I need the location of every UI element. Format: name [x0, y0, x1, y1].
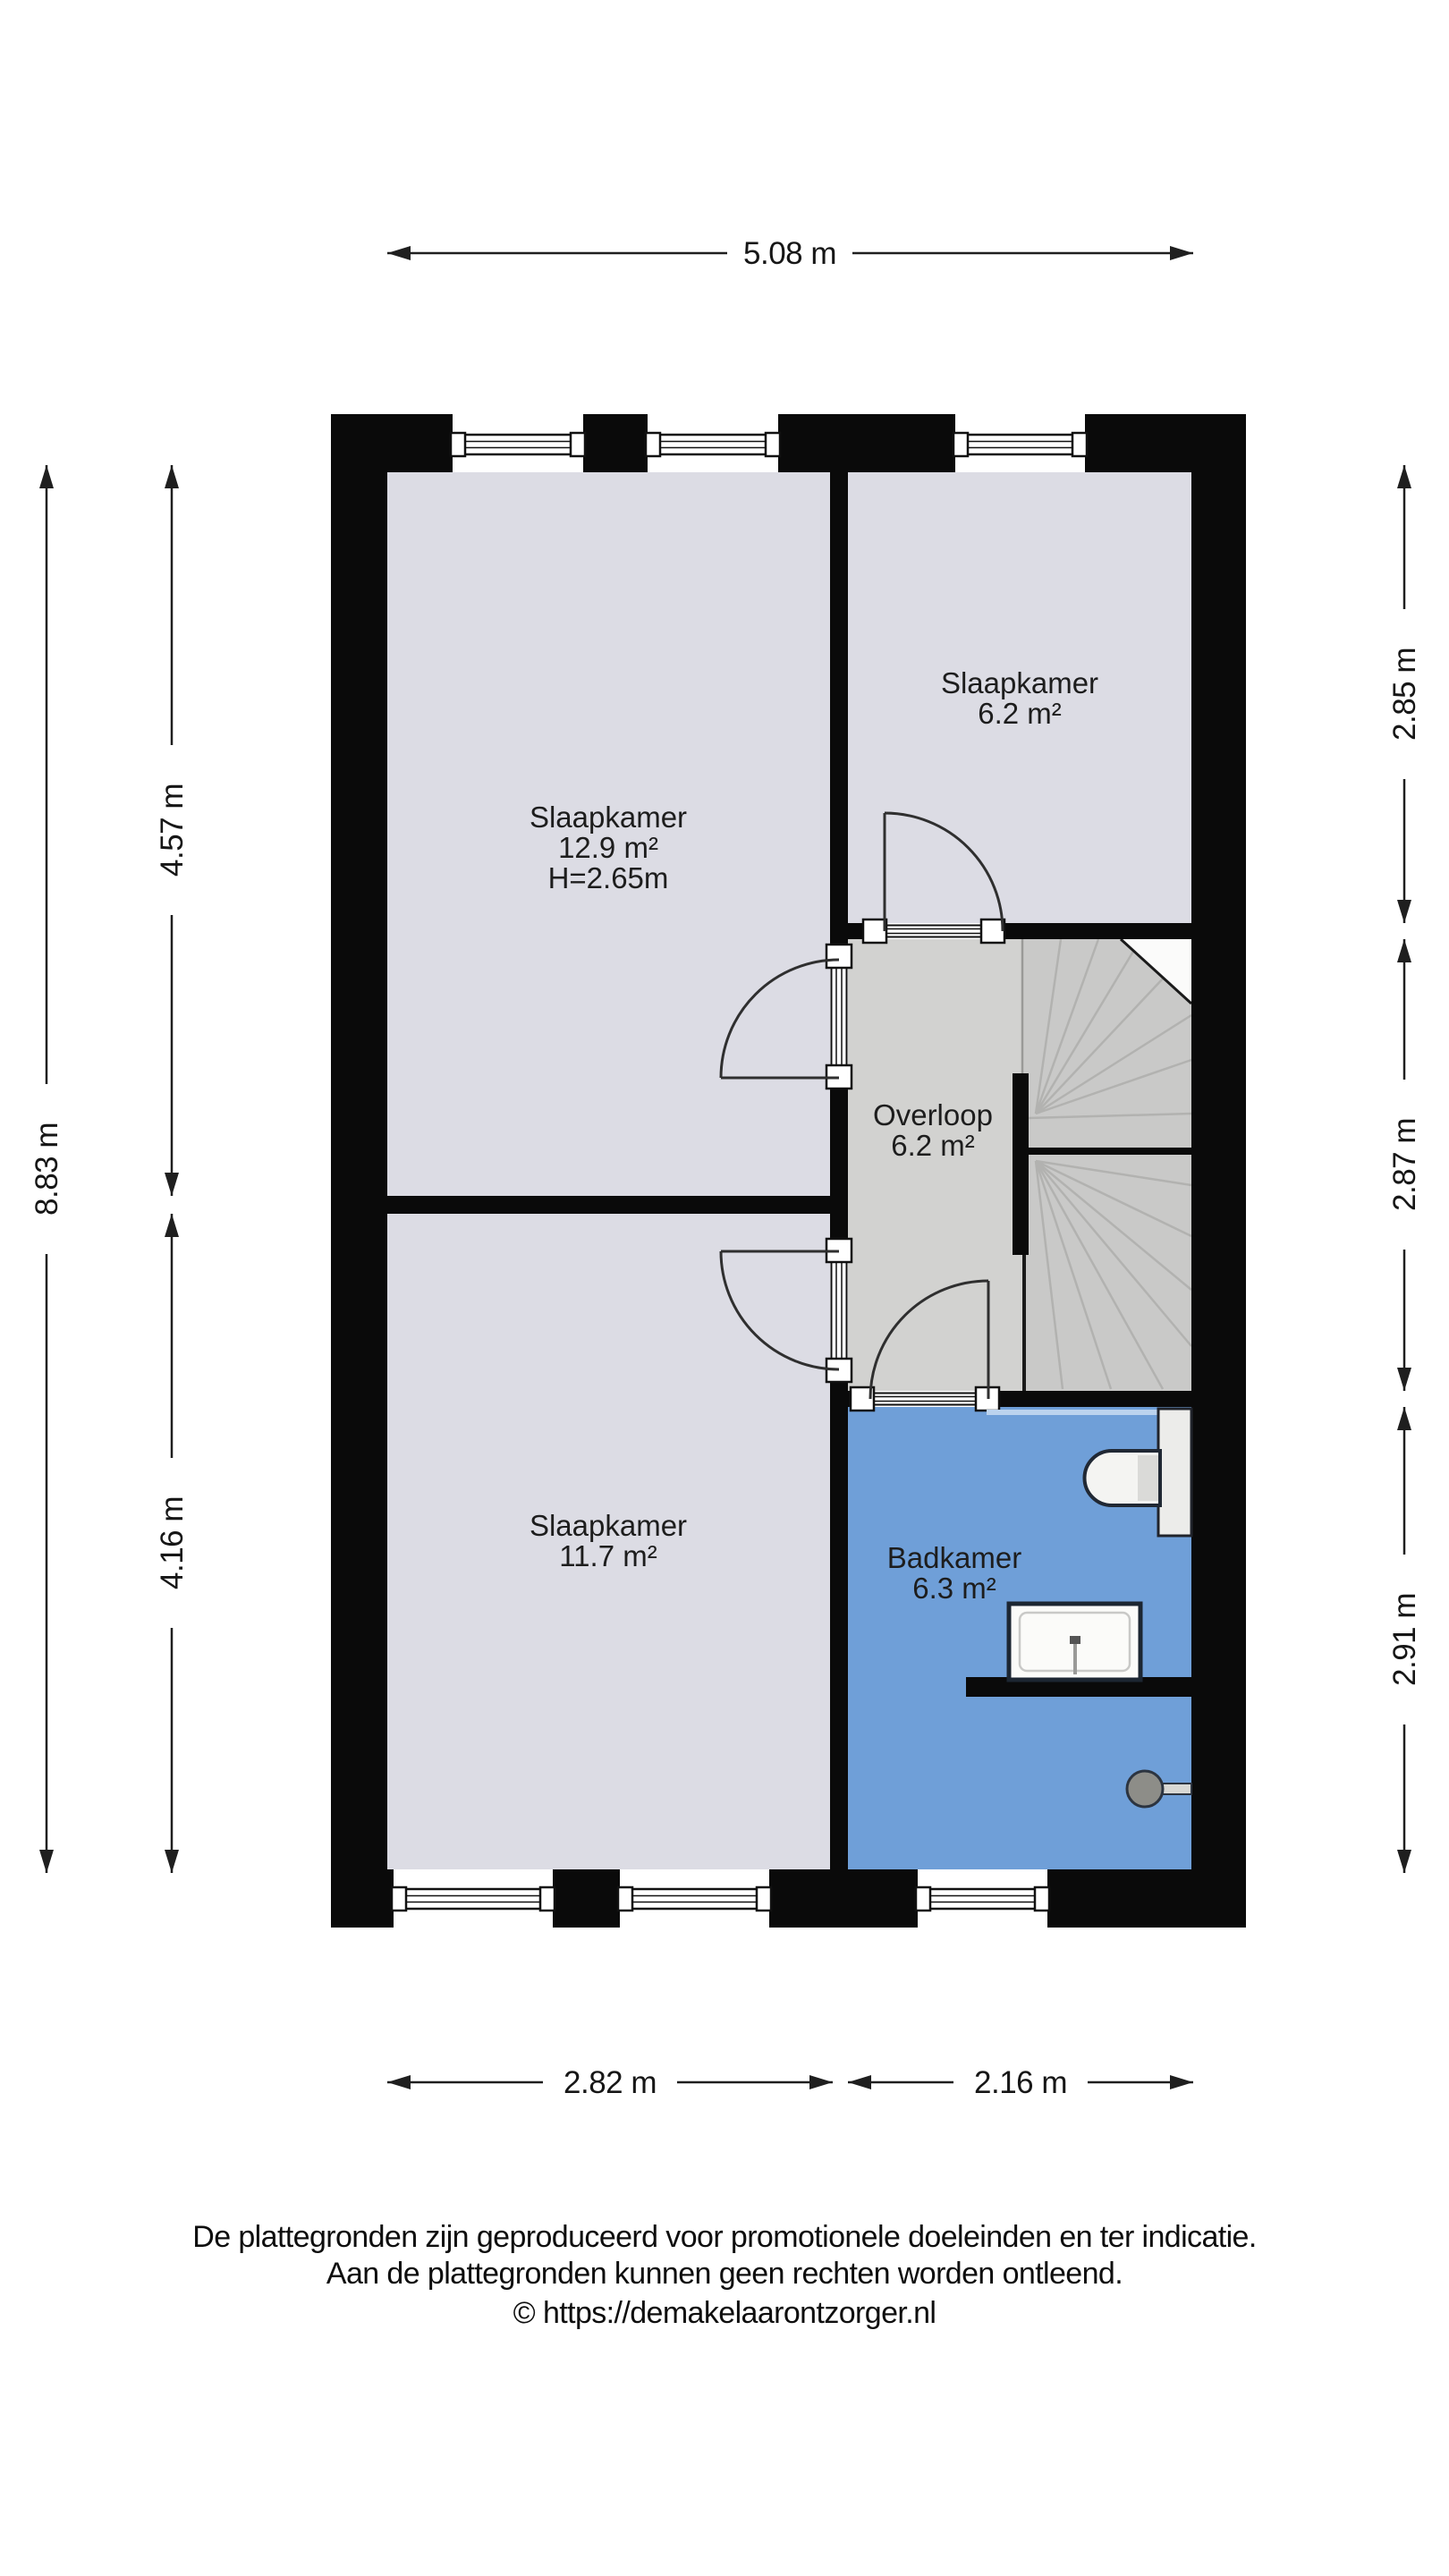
interior-wall-vertical — [830, 1382, 848, 1869]
footer-copyright: © https://demakelaarontzorger.nl — [513, 2296, 936, 2330]
floor-overloop — [848, 939, 1022, 1391]
outer-wall-top — [331, 414, 453, 472]
outer-wall-bottom — [331, 1869, 394, 1928]
interior-wall-vertical — [830, 472, 848, 946]
outer-wall-top — [1085, 414, 1246, 472]
window — [646, 414, 780, 472]
dim-bottom-right-width: 2.16 m — [974, 2065, 1067, 2100]
interior-wall-vertical — [830, 1089, 848, 1241]
room-name: Slaapkamer — [530, 801, 687, 834]
room-name: Slaapkamer — [941, 666, 1098, 699]
stairs-separator — [1022, 1148, 1191, 1155]
washbasin-icon — [1009, 1604, 1140, 1680]
interior-wall-bedrooms — [387, 1196, 830, 1214]
dim-right-bottom: 2.91 m — [1387, 1593, 1422, 1686]
shower-screen — [987, 1410, 1158, 1415]
room-name: Slaapkamer — [530, 1509, 687, 1542]
floor-stairs — [1022, 939, 1191, 1391]
footer-line-2: Aan de plattegronden kunnen geen rechten… — [326, 2257, 1123, 2291]
outer-wall-top — [778, 414, 955, 472]
window — [953, 414, 1087, 472]
outer-wall-left — [331, 414, 387, 1928]
window — [392, 1869, 555, 1928]
room-name: Badkamer — [887, 1541, 1021, 1574]
footer-line-1: De plattegronden zijn geproduceerd voor … — [192, 2220, 1256, 2254]
interior-wall-badkamer-top — [999, 1391, 1191, 1407]
room-ceiling-height: H=2.65m — [548, 861, 669, 894]
dim-right-top: 2.85 m — [1387, 648, 1422, 741]
stairs-stringer — [1022, 1255, 1026, 1391]
room-area: 6.3 m² — [912, 1572, 996, 1605]
footer-disclaimer: De plattegronden zijn geproduceerd voor … — [192, 2220, 1256, 2330]
outer-wall-right — [1191, 414, 1246, 1928]
floorplan-page: 5.08 m 2.82 m 2.16 m 8.83 m 4.57 m 4.16 … — [0, 0, 1449, 2576]
outer-wall-bottom — [1047, 1869, 1246, 1928]
dim-top-width: 5.08 m — [743, 236, 836, 271]
dim-left-lower: 4.16 m — [155, 1496, 190, 1589]
room-area: 6.2 m² — [978, 697, 1062, 730]
room-name: Overloop — [873, 1098, 993, 1131]
room-area: 6.2 m² — [891, 1129, 975, 1162]
stair-stub-wall — [1013, 1073, 1029, 1255]
window — [618, 1869, 771, 1928]
outer-wall-top — [583, 414, 648, 472]
interior-wall-overloop-top — [1004, 923, 1191, 939]
dim-right-middle: 2.87 m — [1387, 1118, 1422, 1211]
dim-left-upper: 4.57 m — [155, 784, 190, 877]
dim-left-total: 8.83 m — [30, 1123, 64, 1216]
dim-bottom-left-width: 2.82 m — [563, 2065, 657, 2100]
room-area: 11.7 m² — [559, 1539, 657, 1572]
floorplan-drawing: 5.08 m 2.82 m 2.16 m 8.83 m 4.57 m 4.16 … — [0, 0, 1449, 2576]
outer-wall-bottom — [553, 1869, 620, 1928]
window — [916, 1869, 1049, 1928]
room-area: 12.9 m² — [558, 831, 658, 864]
interior-wall-badkamer-top — [830, 1391, 852, 1407]
window — [451, 414, 585, 472]
outer-wall-bottom — [769, 1869, 918, 1928]
